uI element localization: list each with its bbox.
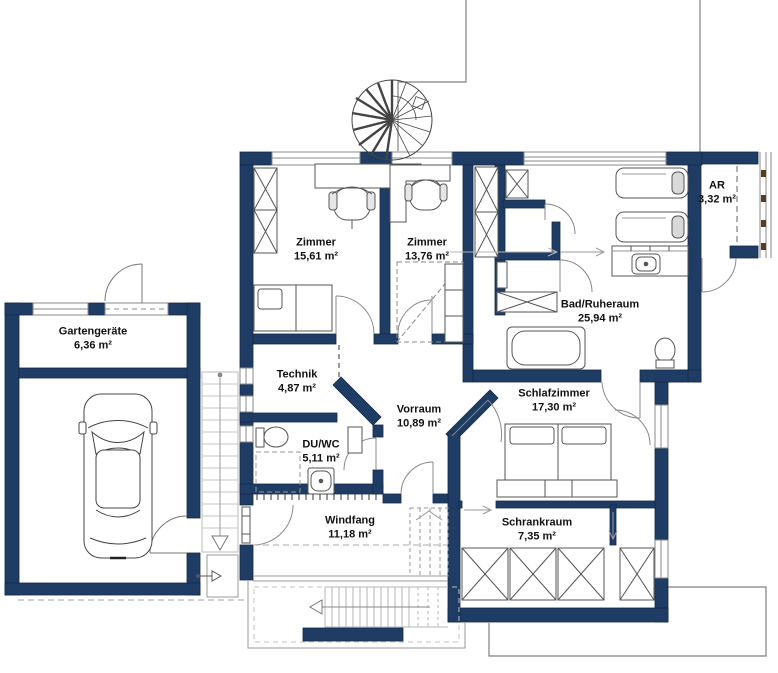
hidden-stair <box>410 508 448 576</box>
toilet <box>655 338 675 368</box>
upper-floor-outline <box>398 0 700 152</box>
entry-door <box>242 507 250 543</box>
bad-furniture <box>497 168 688 369</box>
stair-direction-arrow <box>310 600 322 614</box>
toilet <box>256 427 288 447</box>
floor-plan-drawing <box>0 0 778 673</box>
exterior-stairs <box>196 372 238 597</box>
schrankraum-wardrobes <box>462 548 654 600</box>
lounger <box>616 212 688 242</box>
double-bed <box>497 424 617 497</box>
chair <box>329 187 375 229</box>
chair <box>405 180 447 210</box>
floor-plan: Zimmer 15,61 m² Zimmer 13,76 m² Bad/Ruhe… <box>0 0 778 673</box>
ar-balcony <box>702 152 771 292</box>
sauna-cabinet <box>497 170 557 312</box>
garage-annex <box>5 264 248 600</box>
shelf <box>348 427 362 453</box>
washbasin-counter <box>612 246 688 276</box>
entrance-grate <box>257 494 376 500</box>
spiral-staircase <box>352 80 432 160</box>
zimmer2-furniture <box>390 165 498 342</box>
ar-door-swing <box>702 258 736 292</box>
lounger <box>616 168 688 198</box>
schlafzimmer-furniture <box>497 424 617 497</box>
bathtub <box>507 327 585 369</box>
bed <box>254 285 332 331</box>
washbasin <box>308 468 334 494</box>
railing <box>760 152 771 258</box>
bed <box>397 262 463 342</box>
garage-side-door <box>150 516 187 553</box>
windfang-details <box>253 494 448 581</box>
annex-door <box>105 264 142 303</box>
car <box>79 394 157 558</box>
